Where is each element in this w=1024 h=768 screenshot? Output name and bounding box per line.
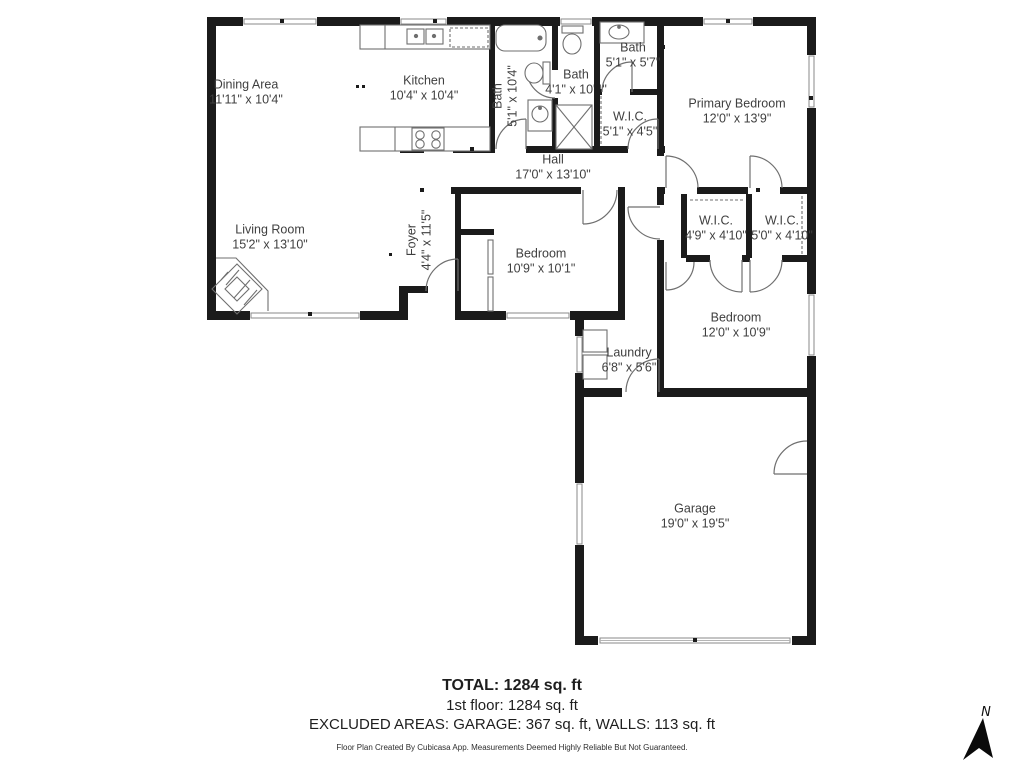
room-name: Bedroom (702, 311, 771, 326)
first-floor-text: 1st floor: 1284 sq. ft (0, 696, 1024, 715)
room-name: Kitchen (390, 74, 459, 89)
room-dims: 10'4" x 10'4" (390, 88, 459, 103)
room-dims: 4'9" x 4'10" (685, 228, 747, 243)
room-label-bedroom-middle: Bedroom 10'9" x 10'1" (507, 247, 576, 276)
room-label-bath-hall: Bath 5'1" x 10'4" (491, 65, 520, 127)
room-name: W.I.C. (603, 110, 658, 125)
room-label-wic-2: W.I.C. 5'0" x 4'10" (751, 214, 813, 243)
room-dims: 10'9" x 10'1" (507, 261, 576, 276)
room-name: Primary Bedroom (688, 97, 785, 112)
north-arrow-icon: N (945, 686, 1009, 764)
room-label-bath-small: Bath 5'1" x 5'7" (606, 41, 661, 70)
excluded-areas-text: EXCLUDED AREAS: GARAGE: 367 sq. ft, WALL… (0, 715, 1024, 734)
room-label-hall: Hall 17'0" x 13'10" (515, 153, 591, 182)
room-label-dining-area: Dining Area 11'11" x 10'4" (209, 78, 283, 107)
room-label-wic-1: W.I.C. 4'9" x 4'10" (685, 214, 747, 243)
room-label-laundry: Laundry 6'8" x 5'6" (602, 346, 657, 375)
room-label-wic-primary: W.I.C. 5'1" x 4'5" (603, 110, 658, 139)
disclaimer-text: Floor Plan Created By Cubicasa App. Meas… (0, 743, 1024, 753)
room-dims: 19'0" x 19'5" (661, 516, 730, 531)
room-dims: 6'8" x 5'6" (602, 360, 657, 375)
room-dims: 4'4" x 11'5" (419, 210, 434, 271)
room-name: Dining Area (209, 78, 283, 93)
toilet-1 (525, 62, 550, 84)
room-dims: 17'0" x 13'10" (515, 167, 591, 182)
room-name: Garage (661, 502, 730, 517)
room-name: Living Room (232, 223, 308, 238)
bathtub (496, 25, 546, 51)
room-name: Hall (515, 153, 591, 168)
compass: N (945, 686, 1009, 768)
room-label-foyer: Foyer 4'4" x 11'5" (405, 210, 434, 271)
room-label-garage: Garage 19'0" x 19'5" (661, 502, 730, 531)
room-dims: 12'0" x 13'9" (688, 111, 785, 126)
room-name: Bath (606, 41, 661, 56)
room-dims: 5'1" x 5'7" (606, 55, 661, 70)
fireplace (212, 258, 268, 314)
area-summary: TOTAL: 1284 sq. ft 1st floor: 1284 sq. f… (0, 676, 1024, 753)
room-dims: 11'11" x 10'4" (209, 92, 283, 107)
room-label-bedroom-2: Bedroom 12'0" x 10'9" (702, 311, 771, 340)
floor-plan-page: Dining Area 11'11" x 10'4" Kitchen 10'4"… (0, 0, 1024, 768)
sink-1 (528, 100, 552, 131)
kitchen-counter-top (360, 25, 490, 49)
total-area-text: TOTAL: 1284 sq. ft (0, 676, 1024, 696)
compass-north-label: N (981, 705, 991, 720)
room-name: Bedroom (507, 247, 576, 262)
room-dims: 15'2" x 13'10" (232, 237, 308, 252)
room-name: W.I.C. (685, 214, 747, 229)
room-dims: 5'1" x 4'5" (603, 124, 658, 139)
room-label-primary-bedroom: Primary Bedroom 12'0" x 13'9" (688, 97, 785, 126)
shower (556, 105, 592, 149)
toilet-2 (562, 26, 583, 54)
room-name: Foyer (405, 210, 420, 271)
closet-sliding-door (488, 240, 493, 311)
room-dims: 12'0" x 10'9" (702, 325, 771, 340)
room-name: Laundry (602, 346, 657, 361)
room-label-living-room: Living Room 15'2" x 13'10" (232, 223, 308, 252)
room-name: Bath (491, 65, 506, 127)
room-dims: 5'0" x 4'10" (751, 228, 813, 243)
room-name: W.I.C. (751, 214, 813, 229)
room-dims: 5'1" x 10'4" (505, 65, 520, 127)
room-label-kitchen: Kitchen 10'4" x 10'4" (390, 74, 459, 103)
